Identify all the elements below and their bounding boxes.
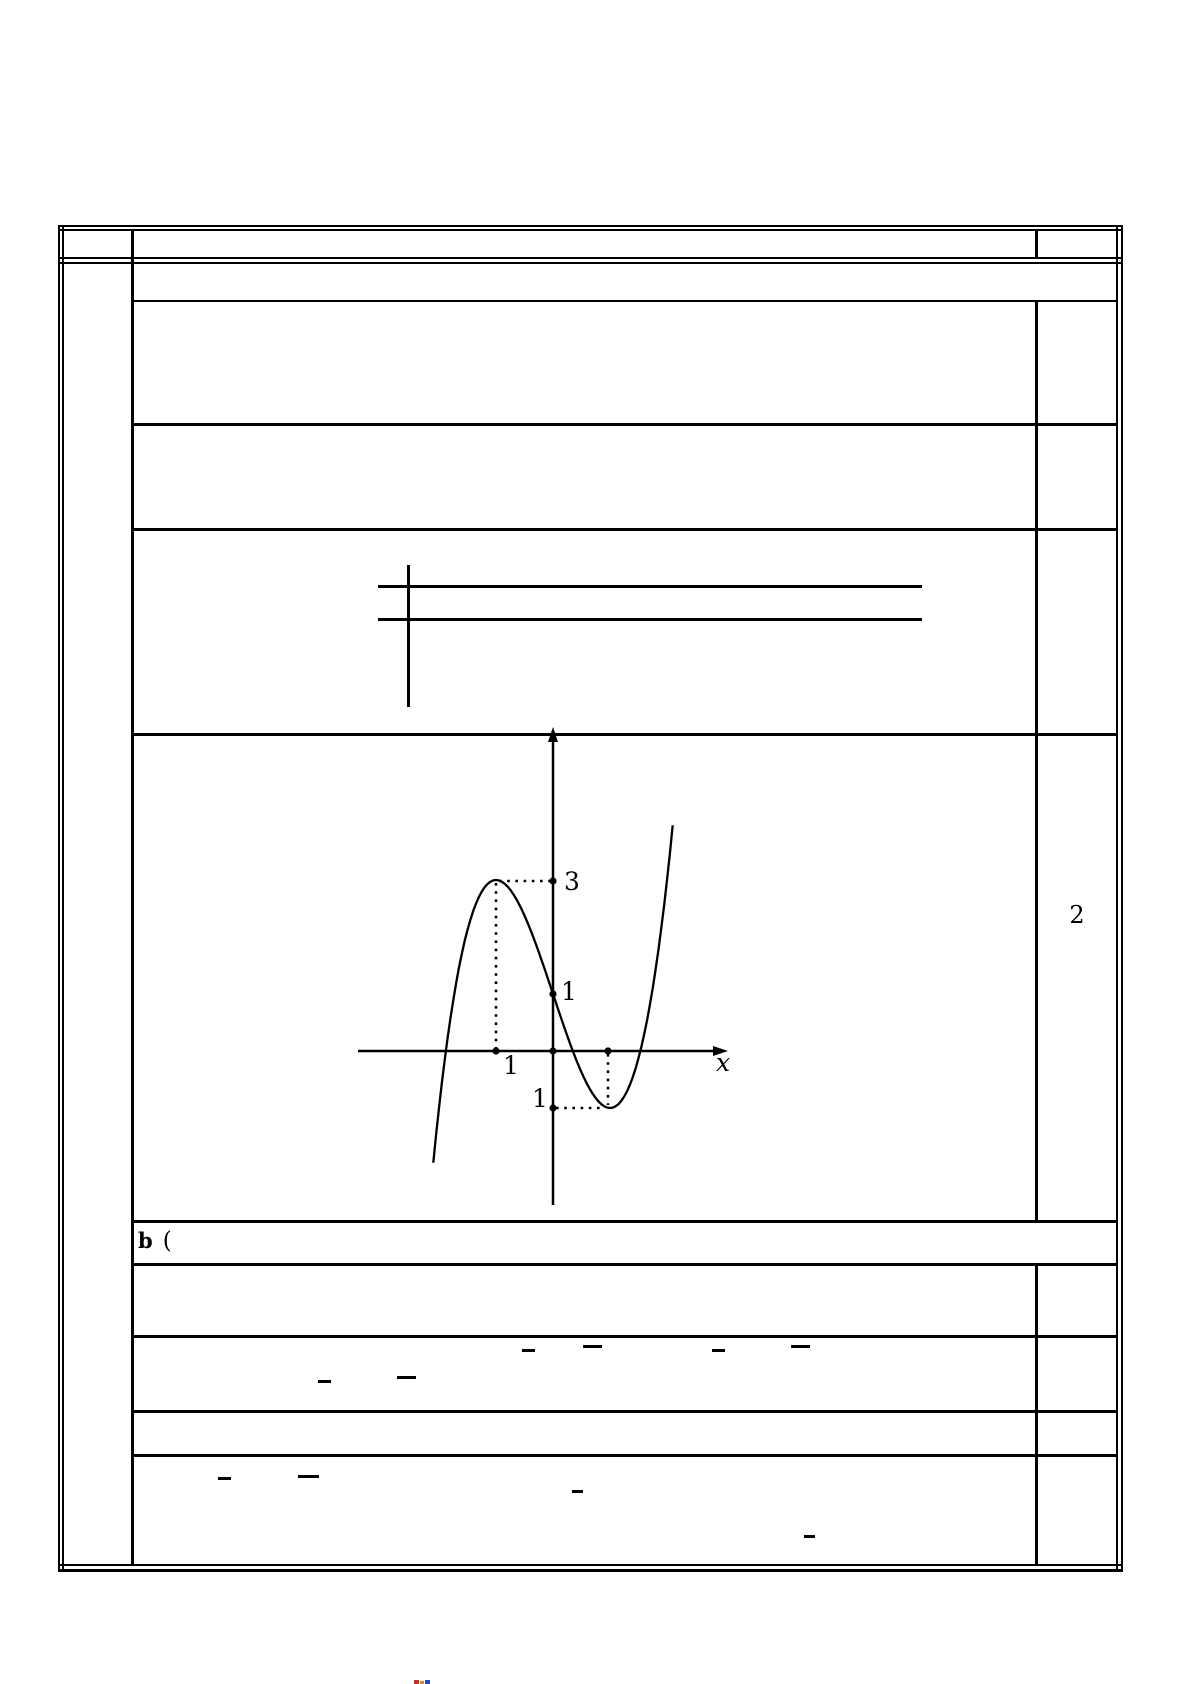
row-divider-1 [132,300,1117,302]
x-axis-label: x [716,1048,730,1077]
artifact-red-speck [414,1680,419,1684]
table-outer-border-left [58,225,60,1572]
label-y-3: 3 [564,867,580,896]
header-row-divider-inner [58,262,1123,264]
y-axis-arrow-icon [548,727,558,742]
fraction-bar [791,1345,810,1348]
score-column-separator-upper [1035,300,1038,1220]
header-row-divider [58,257,1123,259]
part-b-row-label: b( [138,1228,172,1254]
label-y-1: 1 [561,977,577,1006]
minus-dash [522,1349,535,1352]
table-outer-border-top-inner [58,229,1123,231]
row-divider-8 [132,1410,1117,1413]
artifact-blue-speck [425,1680,430,1684]
minus-dash [218,1477,231,1480]
row-divider-6 [132,1263,1117,1266]
score-column-separator-header [1035,229,1038,257]
point-y-3 [549,877,556,884]
table-outer-border-bottom-inner [58,1564,1123,1566]
sign-table-horizontal-rule-2 [378,618,922,621]
point-origin [549,1047,556,1054]
table-outer-border-right [1121,225,1123,1572]
index-column-separator [131,229,134,1564]
table-outer-border-bottom [58,1569,1123,1572]
score-value: 2 [1062,901,1092,929]
fraction-bar [397,1376,416,1379]
point-y-intercept [549,990,556,997]
point-x-plus1 [604,1047,611,1054]
sign-table-horizontal-rule-1 [378,585,922,588]
table-outer-border-left-inner [62,225,64,1572]
table-outer-border-top [58,225,1123,227]
point-x-minus1 [492,1047,499,1054]
fraction-bar [583,1345,602,1348]
minus-dash [712,1349,725,1352]
minus-dash [572,1490,583,1493]
document-page: 3 1 1 1 x 2 b( [0,0,1191,1684]
row-divider-2 [132,423,1117,426]
row-divider-5 [132,1220,1117,1223]
row-divider-3 [132,528,1117,531]
label-x-minus1: 1 [503,1051,519,1080]
table-outer-border-right-inner [1116,225,1118,1572]
minus-dash [804,1535,815,1538]
label-y-minus1: 1 [532,1084,548,1113]
minus-dash [318,1380,331,1383]
cubic-function-graph: 3 1 1 1 x [340,700,770,1215]
part-b-letter: b [138,1228,153,1253]
point-y-minus1 [549,1104,556,1111]
part-b-paren: ( [163,1228,172,1254]
fraction-bar [298,1475,319,1478]
row-divider-7 [132,1335,1117,1338]
score-column-separator-lower [1035,1263,1038,1564]
row-divider-9 [132,1454,1117,1457]
